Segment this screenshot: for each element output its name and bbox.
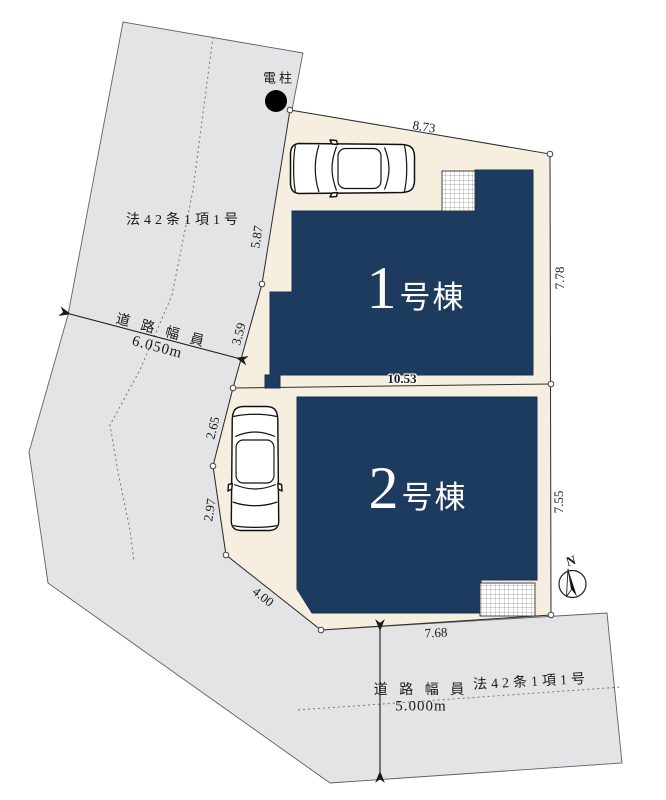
utility-pole-icon bbox=[265, 90, 287, 112]
site-plan: 8.73 5.87 3.59 10.53 7.78 7.55 2.65 2.97… bbox=[0, 0, 666, 800]
building-2-label: 2 号棟 bbox=[369, 458, 468, 518]
dim-top: 8.73 bbox=[412, 117, 437, 136]
road-bottom-width-value: 5.000m bbox=[395, 699, 446, 716]
building-1-label: 1 号棟 bbox=[367, 258, 466, 318]
utility-pole-label: 電柱 bbox=[263, 68, 295, 87]
car-icon-lot2 bbox=[228, 407, 282, 531]
north-compass-icon bbox=[559, 569, 586, 598]
dim-bottom: 7.68 bbox=[424, 624, 448, 641]
dim-right-upper: 7.78 bbox=[552, 267, 568, 290]
building-2-number: 2 bbox=[369, 458, 399, 518]
hatched-terrace-1 bbox=[442, 171, 475, 211]
car-icon-lot1 bbox=[291, 140, 415, 197]
road-left-law-text: 法42条1項1号 bbox=[126, 209, 242, 229]
hatched-terrace-2 bbox=[480, 583, 535, 616]
building-1-suffix: 号棟 bbox=[400, 282, 466, 313]
dim-right-lower: 7.55 bbox=[551, 491, 567, 514]
dim-divider: 10.53 bbox=[387, 371, 416, 387]
building-2-suffix: 号棟 bbox=[402, 482, 468, 513]
building-1-number: 1 bbox=[367, 258, 397, 318]
road-bottom-width-label: 道 路 幅 員 bbox=[374, 679, 469, 699]
